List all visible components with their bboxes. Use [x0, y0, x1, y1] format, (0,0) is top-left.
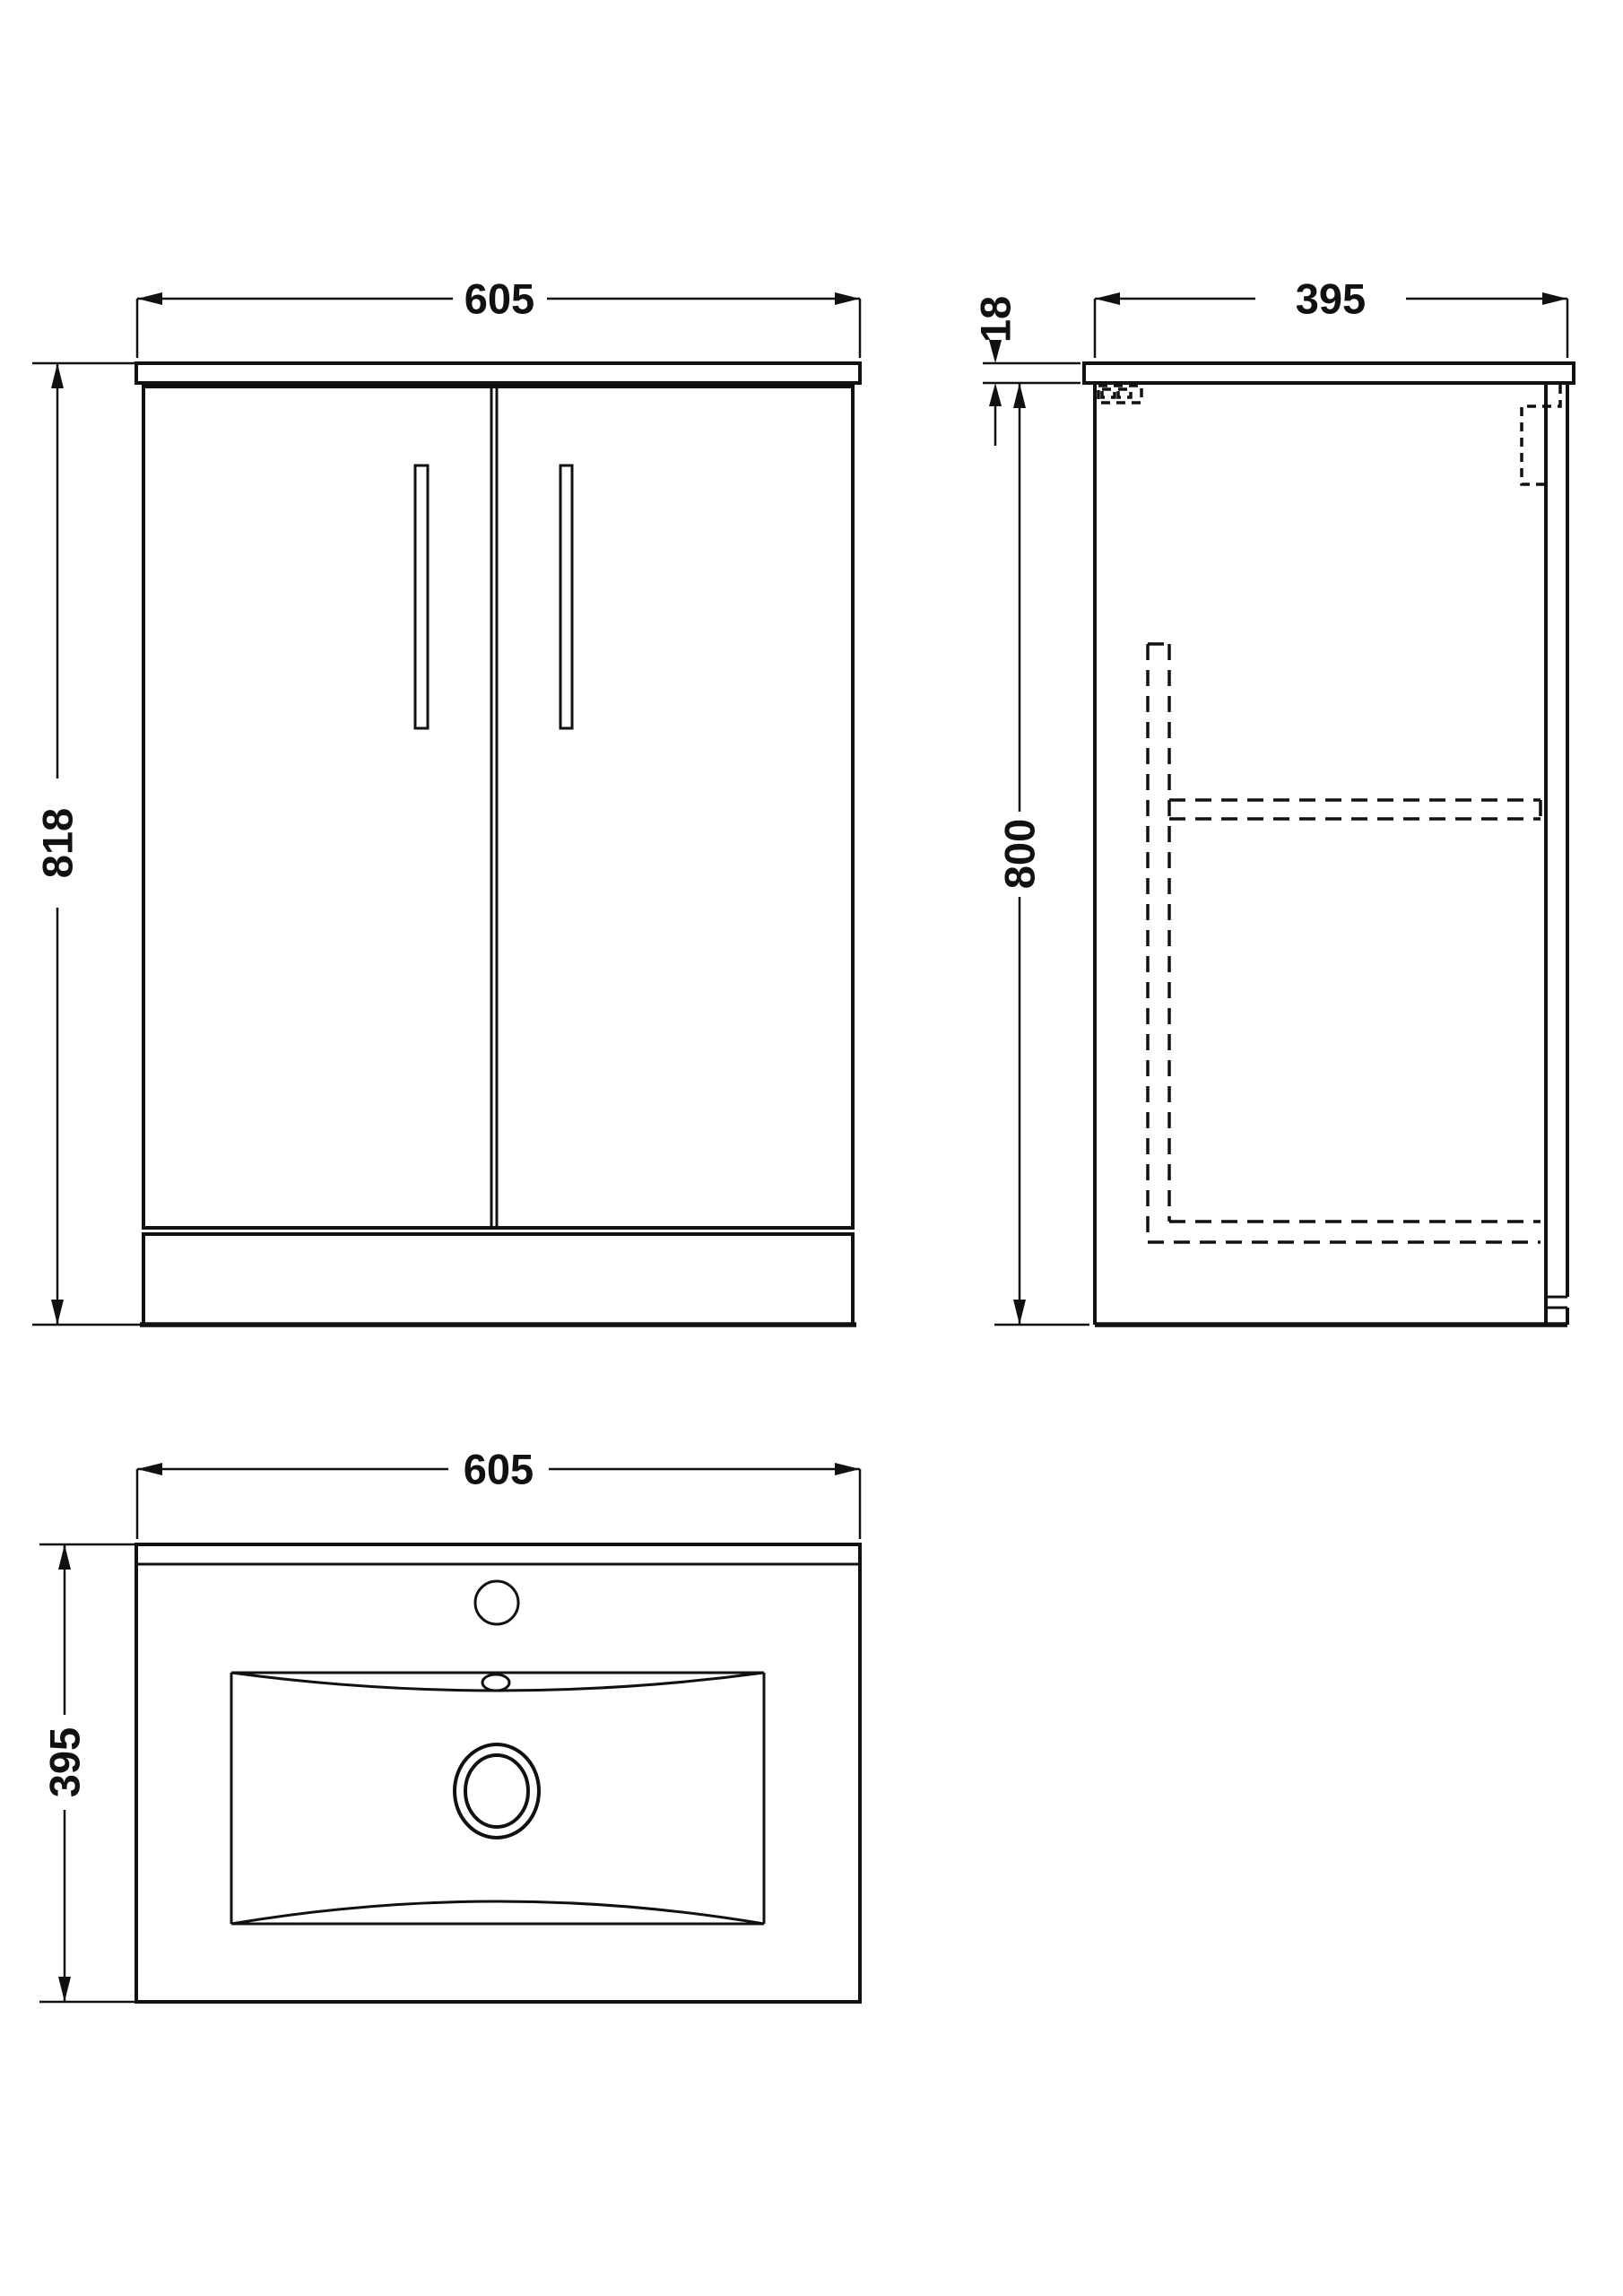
side-worktop-thickness-dimension: 18 [972, 296, 1081, 446]
side-shelf-hidden [1169, 800, 1541, 819]
front-view: 605 818 [32, 275, 860, 1326]
side-depth-dimension-label: 395 [1296, 275, 1366, 323]
side-panel-hidden [1148, 644, 1169, 1242]
side-hinge-detail-hidden [1098, 386, 1141, 403]
vanity-unit-dimension-drawing: 605 818 [0, 0, 1623, 2296]
front-width-dimension-label: 605 [464, 275, 534, 323]
plan-view: 605 395 [39, 1446, 860, 2003]
side-worktop-thickness-label: 18 [972, 296, 1020, 343]
front-height-dimension: 818 [32, 363, 140, 1325]
side-back-panel [1546, 383, 1567, 1325]
front-worktop [136, 363, 860, 383]
side-bracket-detail-hidden [1522, 385, 1560, 484]
plan-worktop-outline [136, 1544, 860, 2002]
side-worktop [1084, 363, 1574, 383]
plan-depth-dimension: 395 [39, 1544, 135, 2002]
front-plinth [143, 1234, 853, 1325]
technical-drawing-page: 605 818 [0, 0, 1623, 2296]
front-width-dimension: 605 [137, 275, 860, 359]
plan-depth-dimension-label: 395 [41, 1727, 89, 1797]
side-height-dimension-label: 800 [996, 819, 1044, 889]
side-floor-hidden [1148, 1222, 1541, 1242]
side-view: 395 18 [972, 275, 1575, 1326]
side-depth-dimension: 395 [1095, 275, 1567, 359]
plan-width-dimension-label: 605 [464, 1446, 534, 1493]
side-height-dimension: 800 [994, 383, 1089, 1325]
front-height-dimension-label: 818 [34, 808, 82, 878]
plan-width-dimension: 605 [137, 1446, 860, 1540]
